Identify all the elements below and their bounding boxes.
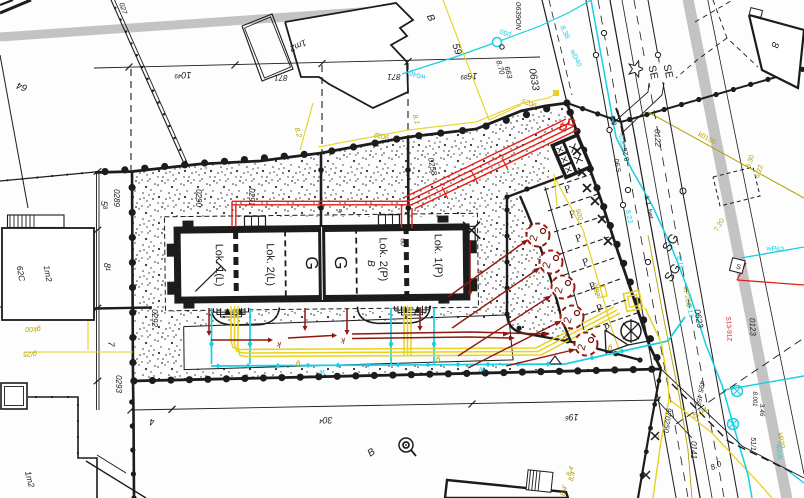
svg-text:4: 4	[149, 417, 154, 427]
svg-text:0123: 0123	[748, 318, 758, 337]
svg-text:Lok. 1(P): Lok. 1(P)	[432, 234, 444, 278]
svg-text:0639ON: 0639ON	[514, 2, 523, 31]
svg-text:0292: 0292	[150, 309, 159, 327]
svg-text:g: g	[295, 360, 300, 369]
svg-text:·: ·	[612, 295, 615, 305]
svg-text:Lok. 2(L): Lok. 2(L)	[264, 243, 276, 286]
svg-text:g: g	[435, 356, 440, 365]
svg-text:0141: 0141	[689, 441, 698, 459]
svg-text:871: 871	[387, 72, 400, 81]
svg-text:0293: 0293	[114, 375, 123, 393]
svg-text:8.001: 8.001	[751, 391, 757, 406]
svg-text:G: G	[331, 256, 351, 270]
svg-text:871: 871	[274, 73, 287, 82]
svg-text:0289: 0289	[112, 189, 121, 207]
svg-text:Lok. 1(L): Lok. 1(L)	[213, 244, 225, 287]
svg-text:G: G	[302, 256, 322, 270]
svg-text:g/25: g/25	[23, 350, 37, 357]
svg-text:S13-91Z: S13-91Z	[724, 316, 732, 341]
svg-text:Lok. 2(P): Lok. 2(P)	[377, 237, 389, 281]
svg-text:gk00: gk00	[25, 325, 40, 332]
svg-text:0122: 0122	[653, 129, 663, 148]
svg-text:B: B	[365, 260, 376, 267]
svg-text:51/1: 51/1	[749, 437, 756, 451]
svg-text:0290: 0290	[194, 189, 203, 207]
svg-text:3.46: 3.46	[758, 404, 765, 417]
svg-text:0291: 0291	[247, 188, 256, 206]
svg-text:60: 60	[399, 238, 406, 246]
svg-text:e: e	[338, 207, 342, 214]
